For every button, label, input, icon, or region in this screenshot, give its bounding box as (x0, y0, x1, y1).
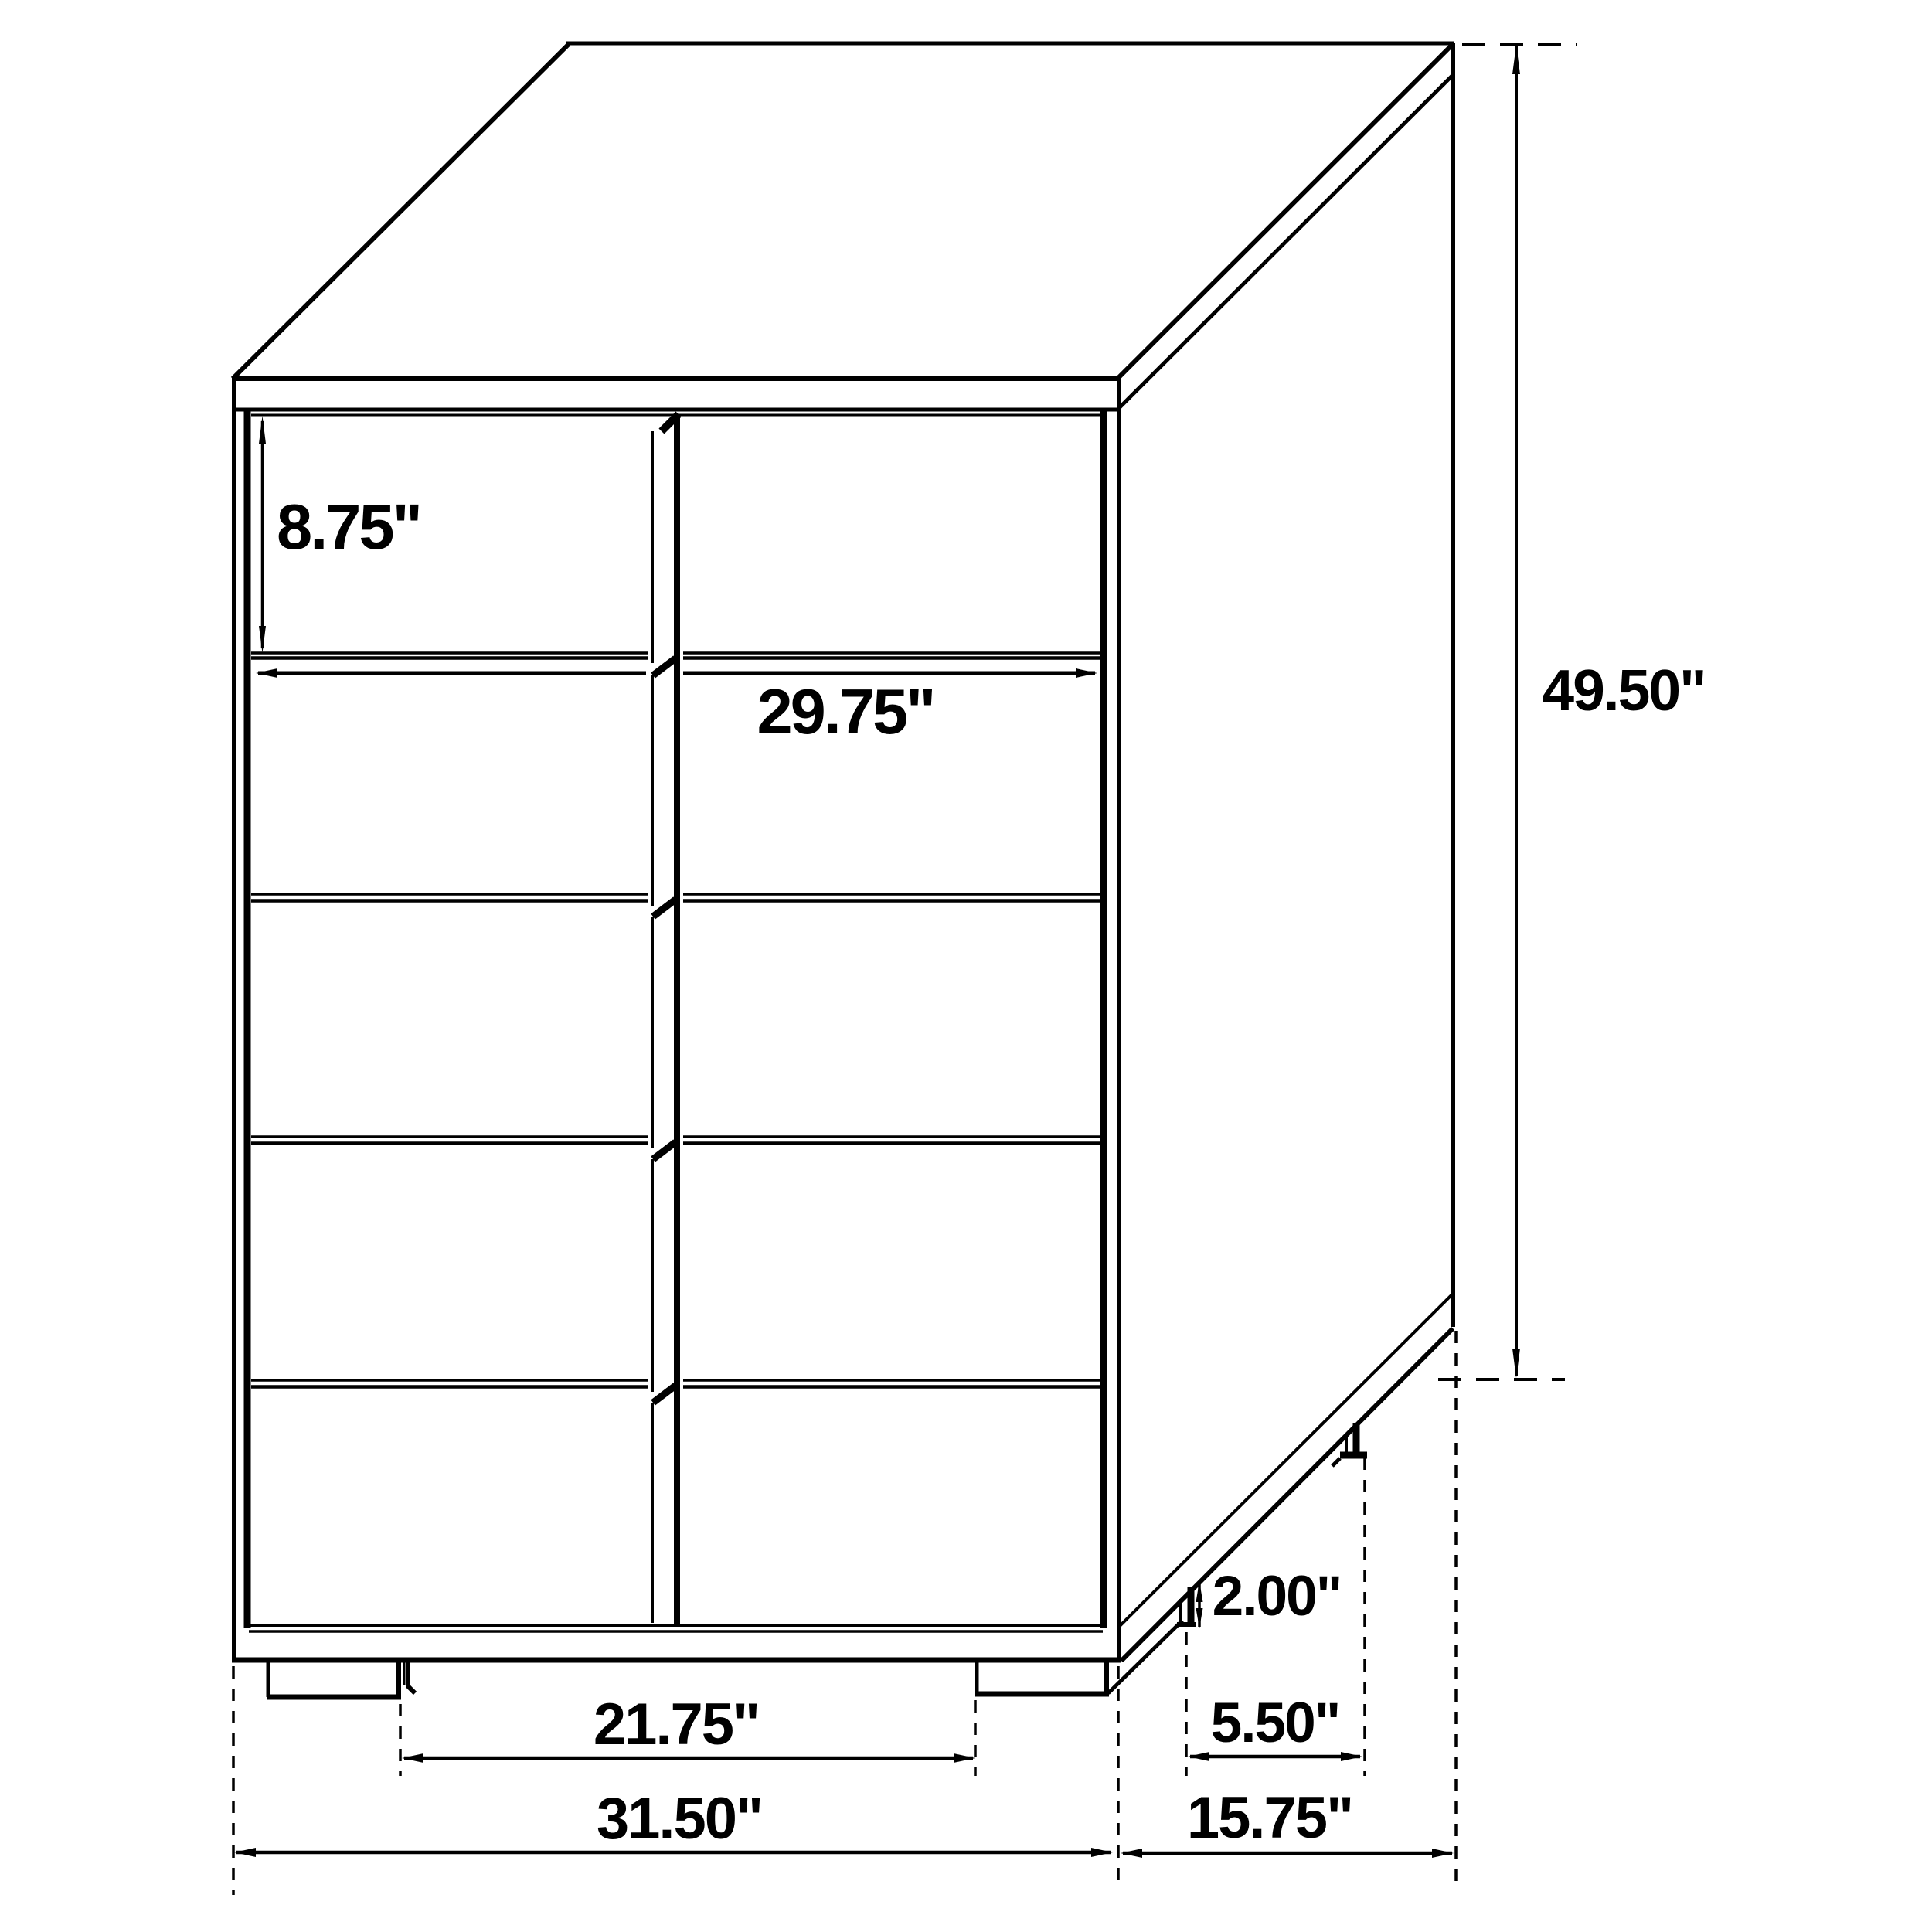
svg-text:21.75": 21.75" (594, 1692, 759, 1757)
svg-text:29.75": 29.75" (757, 675, 934, 747)
svg-text:5.50": 5.50" (1211, 1692, 1340, 1754)
svg-text:2.00": 2.00" (1213, 1565, 1342, 1628)
svg-text:49.50": 49.50" (1542, 658, 1705, 723)
svg-text:8.75": 8.75" (277, 491, 420, 563)
svg-text:31.50": 31.50" (597, 1786, 762, 1852)
svg-text:15.75": 15.75" (1187, 1785, 1352, 1851)
